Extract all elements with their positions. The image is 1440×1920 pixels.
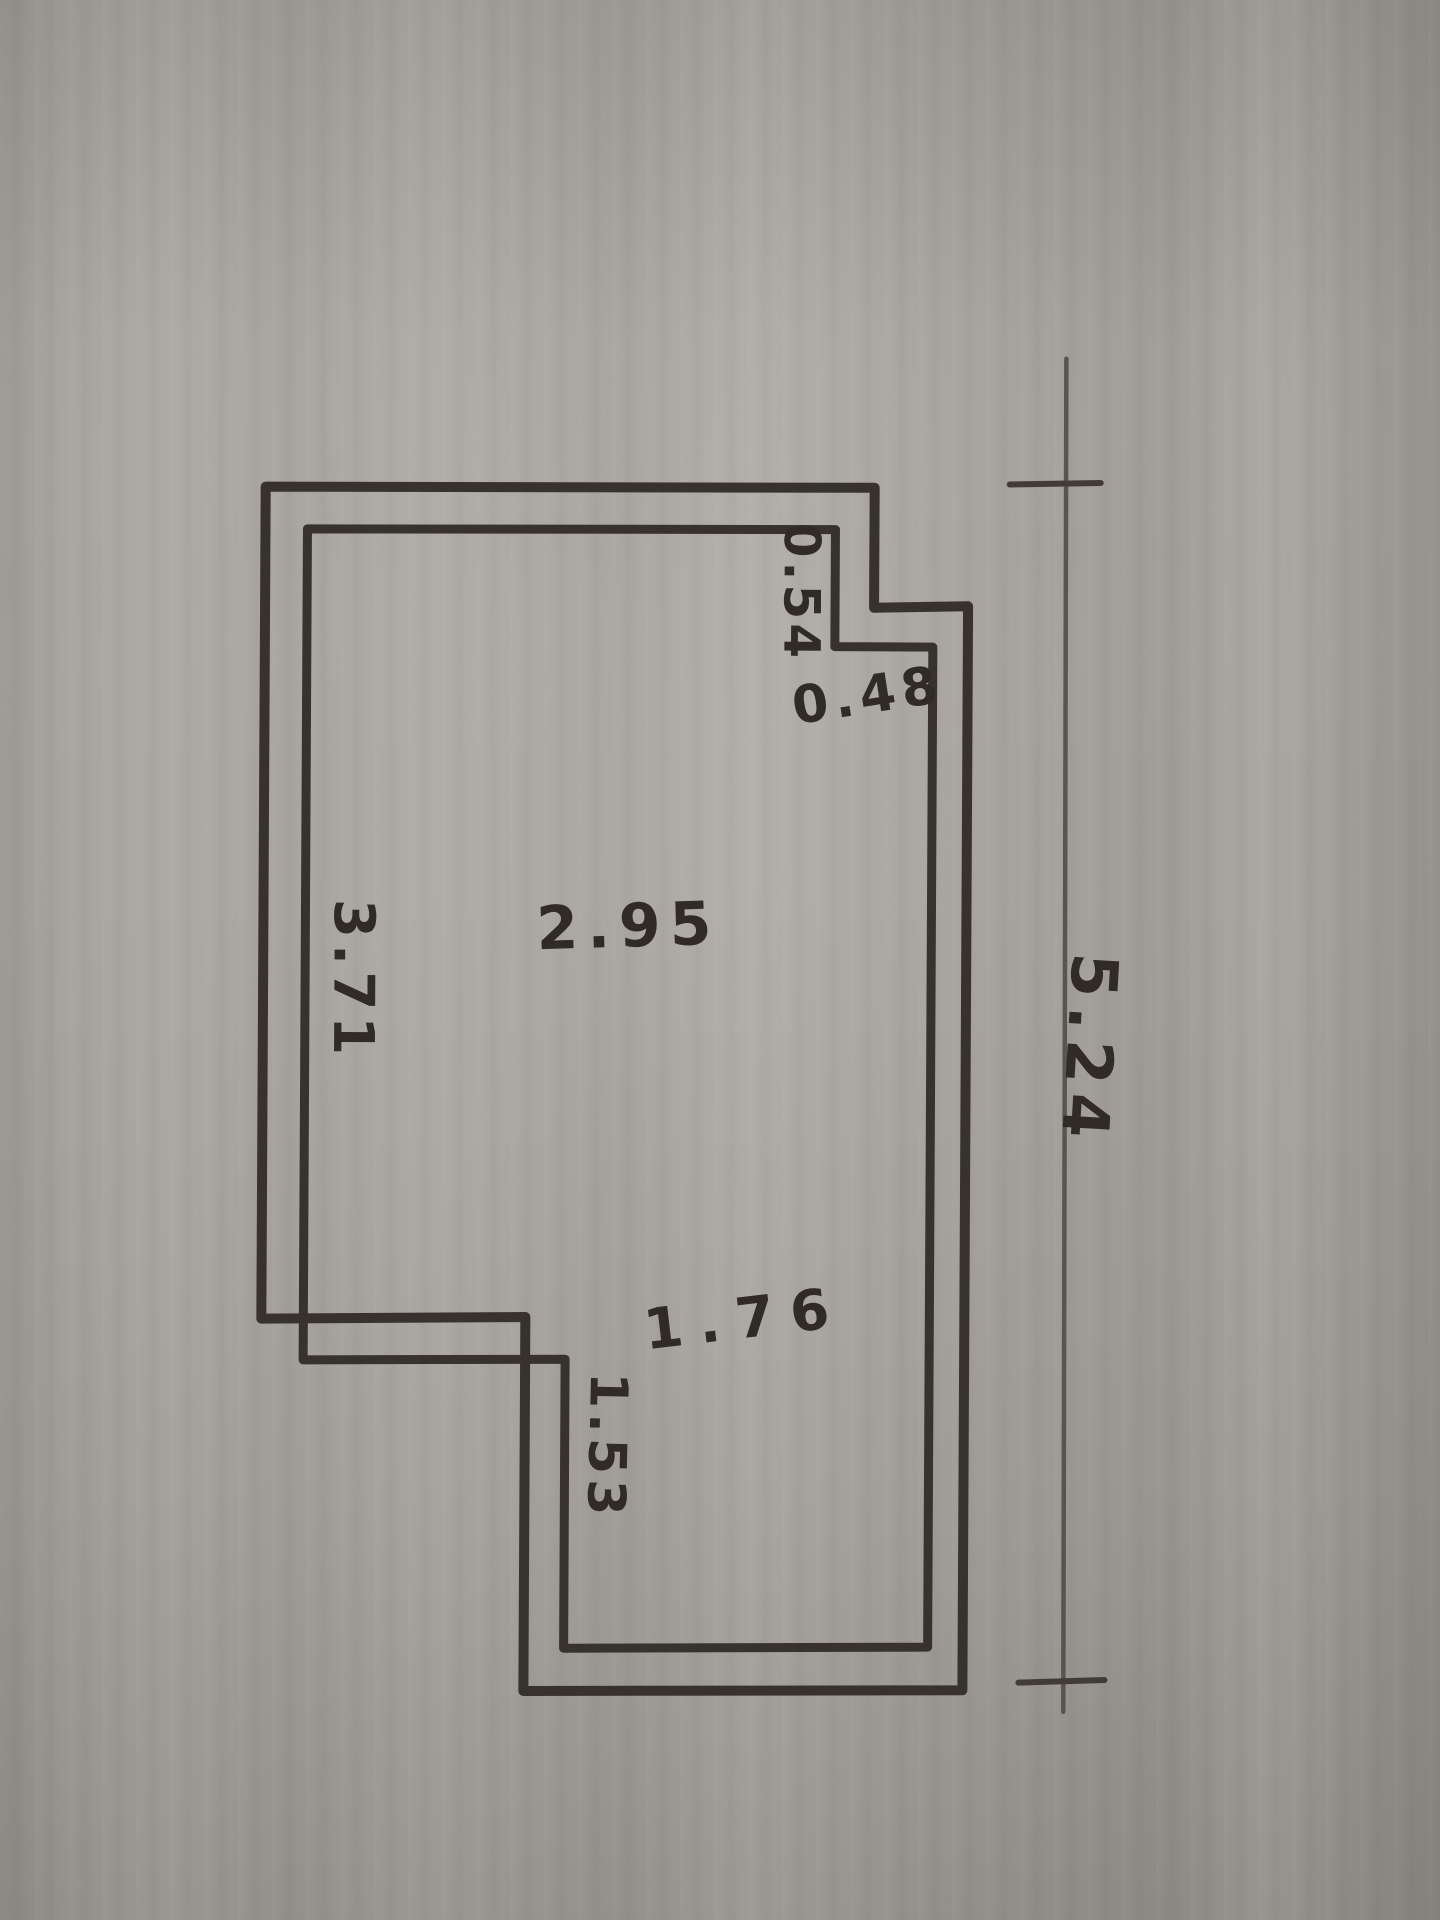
photo-grain-overlay [0,0,1440,1920]
paper-photo-background: 0.54 0.48 2.95 3.71 5.24 1.76 1.53 [0,0,1440,1920]
floor-plan-svg: 0.54 0.48 2.95 3.71 5.24 1.76 1.53 [0,0,1440,1920]
